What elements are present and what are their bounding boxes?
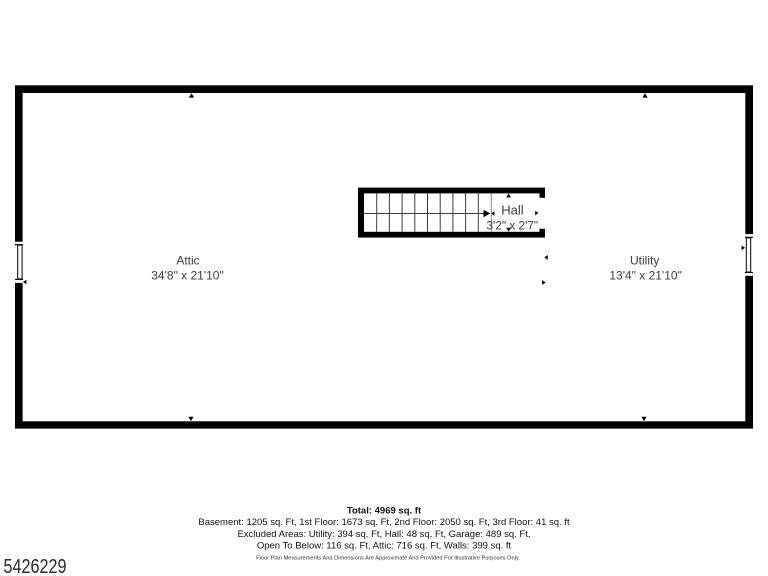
svg-text:Excluded Areas: Utility: 394 s: Excluded Areas: Utility: 394 sq. Ft, Hal… xyxy=(237,529,530,540)
svg-text:5426229: 5426229 xyxy=(4,555,67,576)
svg-text:Utility: Utility xyxy=(630,253,659,267)
svg-text:Floor Plan Measurements And Di: Floor Plan Measurements And Dimensions A… xyxy=(256,556,520,562)
svg-text:Total: 4969 sq. ft: Total: 4969 sq. ft xyxy=(347,505,422,516)
svg-text:13'4" x 21'10": 13'4" x 21'10" xyxy=(609,268,682,282)
svg-text:3'2" x 2'7": 3'2" x 2'7" xyxy=(487,218,539,232)
svg-text:Hall: Hall xyxy=(501,202,524,217)
svg-text:Basement: 1205 sq. Ft, 1st Flo: Basement: 1205 sq. Ft, 1st Floor: 1673 s… xyxy=(198,517,570,528)
svg-text:34'8" x 21'10": 34'8" x 21'10" xyxy=(151,268,224,282)
svg-text:Attic: Attic xyxy=(176,253,199,267)
svg-text:Open To Below: 116 sq. Ft, Att: Open To Below: 116 sq. Ft, Attic: 716 sq… xyxy=(257,540,512,551)
